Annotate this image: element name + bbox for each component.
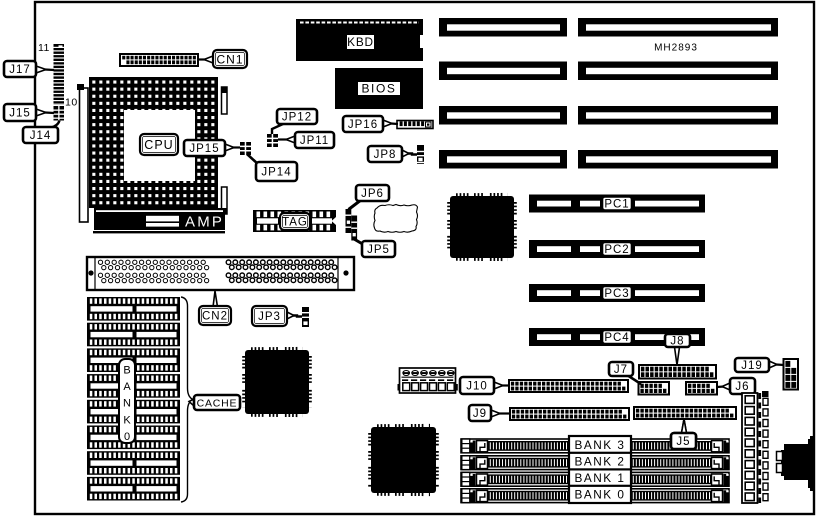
svg-text:J14: J14 — [30, 130, 52, 142]
svg-text:10: 10 — [65, 97, 78, 109]
svg-text:JP14: JP14 — [261, 167, 291, 179]
svg-text:N: N — [123, 398, 131, 410]
svg-text:BANK 1: BANK 1 — [575, 471, 626, 485]
svg-text:PC2: PC2 — [604, 244, 629, 256]
svg-text:J17: J17 — [9, 64, 31, 76]
svg-text:PC4: PC4 — [604, 332, 629, 344]
svg-text:BIOS: BIOS — [361, 82, 396, 96]
svg-text:CPU: CPU — [144, 138, 173, 152]
svg-text:BANK 2: BANK 2 — [575, 455, 626, 469]
svg-text:J8: J8 — [670, 336, 684, 348]
svg-text:J5: J5 — [676, 436, 690, 448]
svg-text:JP16: JP16 — [348, 119, 378, 131]
svg-text:JP6: JP6 — [361, 188, 384, 200]
svg-text:J7: J7 — [614, 364, 628, 376]
svg-text:PC1: PC1 — [604, 199, 629, 211]
svg-text:JP11: JP11 — [300, 135, 329, 147]
svg-text:11: 11 — [38, 42, 50, 54]
svg-text:0: 0 — [124, 431, 130, 443]
svg-text:JP8: JP8 — [374, 149, 397, 161]
svg-text:AMP: AMP — [185, 214, 224, 231]
svg-text:A: A — [123, 381, 131, 393]
svg-text:KBD: KBD — [347, 35, 374, 49]
svg-text:MH2893: MH2893 — [654, 43, 698, 54]
svg-text:K: K — [123, 414, 131, 426]
svg-text:J19: J19 — [741, 360, 763, 372]
svg-text:BANK 0: BANK 0 — [575, 488, 626, 502]
svg-text:TAG: TAG — [282, 217, 308, 229]
svg-text:CN2: CN2 — [202, 311, 228, 323]
svg-text:J10: J10 — [466, 381, 488, 393]
svg-text:CN1: CN1 — [216, 52, 243, 66]
svg-text:J15: J15 — [9, 108, 31, 120]
svg-text:PC3: PC3 — [604, 288, 629, 300]
svg-text:JP12: JP12 — [282, 112, 312, 124]
svg-text:CACHE: CACHE — [197, 397, 238, 409]
svg-text:J6: J6 — [735, 381, 749, 393]
svg-text:JP3: JP3 — [258, 311, 281, 323]
svg-text:B: B — [123, 365, 130, 377]
svg-text:BANK 3: BANK 3 — [575, 438, 626, 452]
svg-text:JP5: JP5 — [367, 244, 390, 256]
svg-text:J9: J9 — [473, 408, 487, 420]
svg-text:JP15: JP15 — [189, 143, 219, 155]
